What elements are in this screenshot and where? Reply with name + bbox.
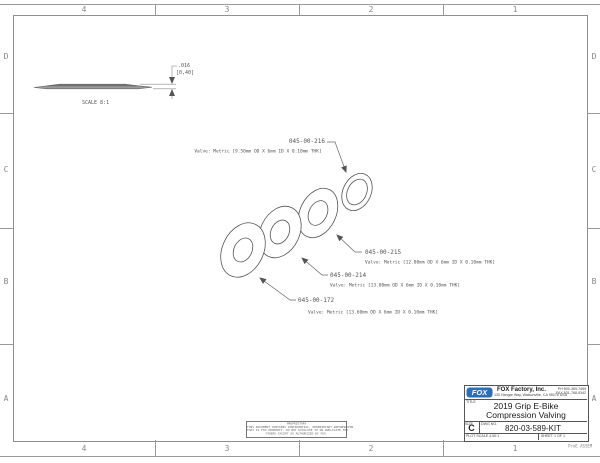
drawing-title-line2: Compression Valving	[467, 410, 585, 420]
zone-col-label: 1	[505, 443, 525, 454]
zone-tick	[0, 113, 13, 114]
zone-tick	[587, 228, 600, 229]
zone-divider	[155, 440, 156, 456]
title-block-divider	[538, 433, 539, 440]
zone-row-label: A	[1, 394, 11, 404]
fox-logo: FOX	[466, 387, 493, 398]
drawing-number: 820-03-589-KIT	[479, 424, 587, 433]
zone-row-label: C	[1, 165, 11, 175]
callout-spec: Valve: Metric [12.00mm OD X 6mm ID X 0.1…	[365, 260, 495, 265]
fox-logo-text: FOX	[472, 388, 488, 397]
callout-part-number: 045-00-214	[330, 272, 366, 279]
zone-tick	[587, 113, 600, 114]
zone-divider	[155, 4, 156, 15]
drawing-size: C	[464, 423, 479, 433]
bottom-border-line	[0, 456, 600, 457]
zone-col-label: 2	[361, 4, 381, 15]
dim-mm-text: [0,40]	[176, 70, 194, 76]
drawing-sheet: 4 3 2 1 4 3 2 1 D C B A D C B A .016 [0,…	[0, 0, 600, 463]
zone-row-label: B	[1, 277, 11, 287]
zone-divider	[443, 4, 444, 15]
zone-col-label: 2	[361, 443, 381, 454]
callout-part-number: 045-00-216	[289, 138, 325, 145]
company-fax: FAX 831-768-9342	[556, 391, 586, 395]
callout-spec: Valve: Metric [9.50mm OD X 6mm ID X 0.10…	[195, 149, 322, 154]
plot-scale: PLOT SCALE 4.00:1	[466, 434, 499, 438]
sheet-number: SHEET 1 OF 1	[541, 434, 565, 438]
callout-part-number: 045-00-172	[298, 297, 334, 304]
zone-row-label: B	[589, 277, 599, 287]
callout-part-number: 045-00-215	[365, 249, 401, 256]
zone-tick	[0, 228, 13, 229]
title-block-divider	[464, 399, 587, 400]
zone-row-label: A	[589, 394, 599, 404]
callout-spec: Valve: Metric [13.00mm OD X 6mm ID X 0.1…	[330, 283, 460, 288]
footer-note: ProE ASSEM	[568, 444, 592, 449]
zone-tick	[587, 344, 600, 345]
zone-row-label: D	[589, 52, 599, 62]
zone-col-label: 3	[217, 443, 237, 454]
drawing-frame	[13, 15, 588, 442]
zone-tick	[0, 344, 13, 345]
callout-spec: Valve: Metric [13.60mm OD X 6mm ID X 0.1…	[308, 310, 438, 315]
zone-col-label: 4	[74, 4, 94, 15]
zone-row-label: C	[589, 165, 599, 175]
proprietary-line: OTHERS EXCEPT AS AUTHORIZED BY FOX.	[247, 432, 346, 435]
zone-divider	[443, 440, 444, 456]
zone-col-label: 4	[74, 443, 94, 454]
zone-divider	[299, 440, 300, 456]
proprietary-note: PROPRIETARY THIS DOCUMENT CONTAINS CONFI…	[247, 422, 346, 435]
zone-divider	[299, 4, 300, 15]
side-view-scale-label: SCALE 8:1	[82, 100, 109, 106]
zone-row-label: D	[1, 52, 11, 62]
dim-inch-text: .016	[178, 63, 190, 69]
zone-col-label: 1	[505, 4, 525, 15]
zone-col-label: 3	[217, 4, 237, 15]
